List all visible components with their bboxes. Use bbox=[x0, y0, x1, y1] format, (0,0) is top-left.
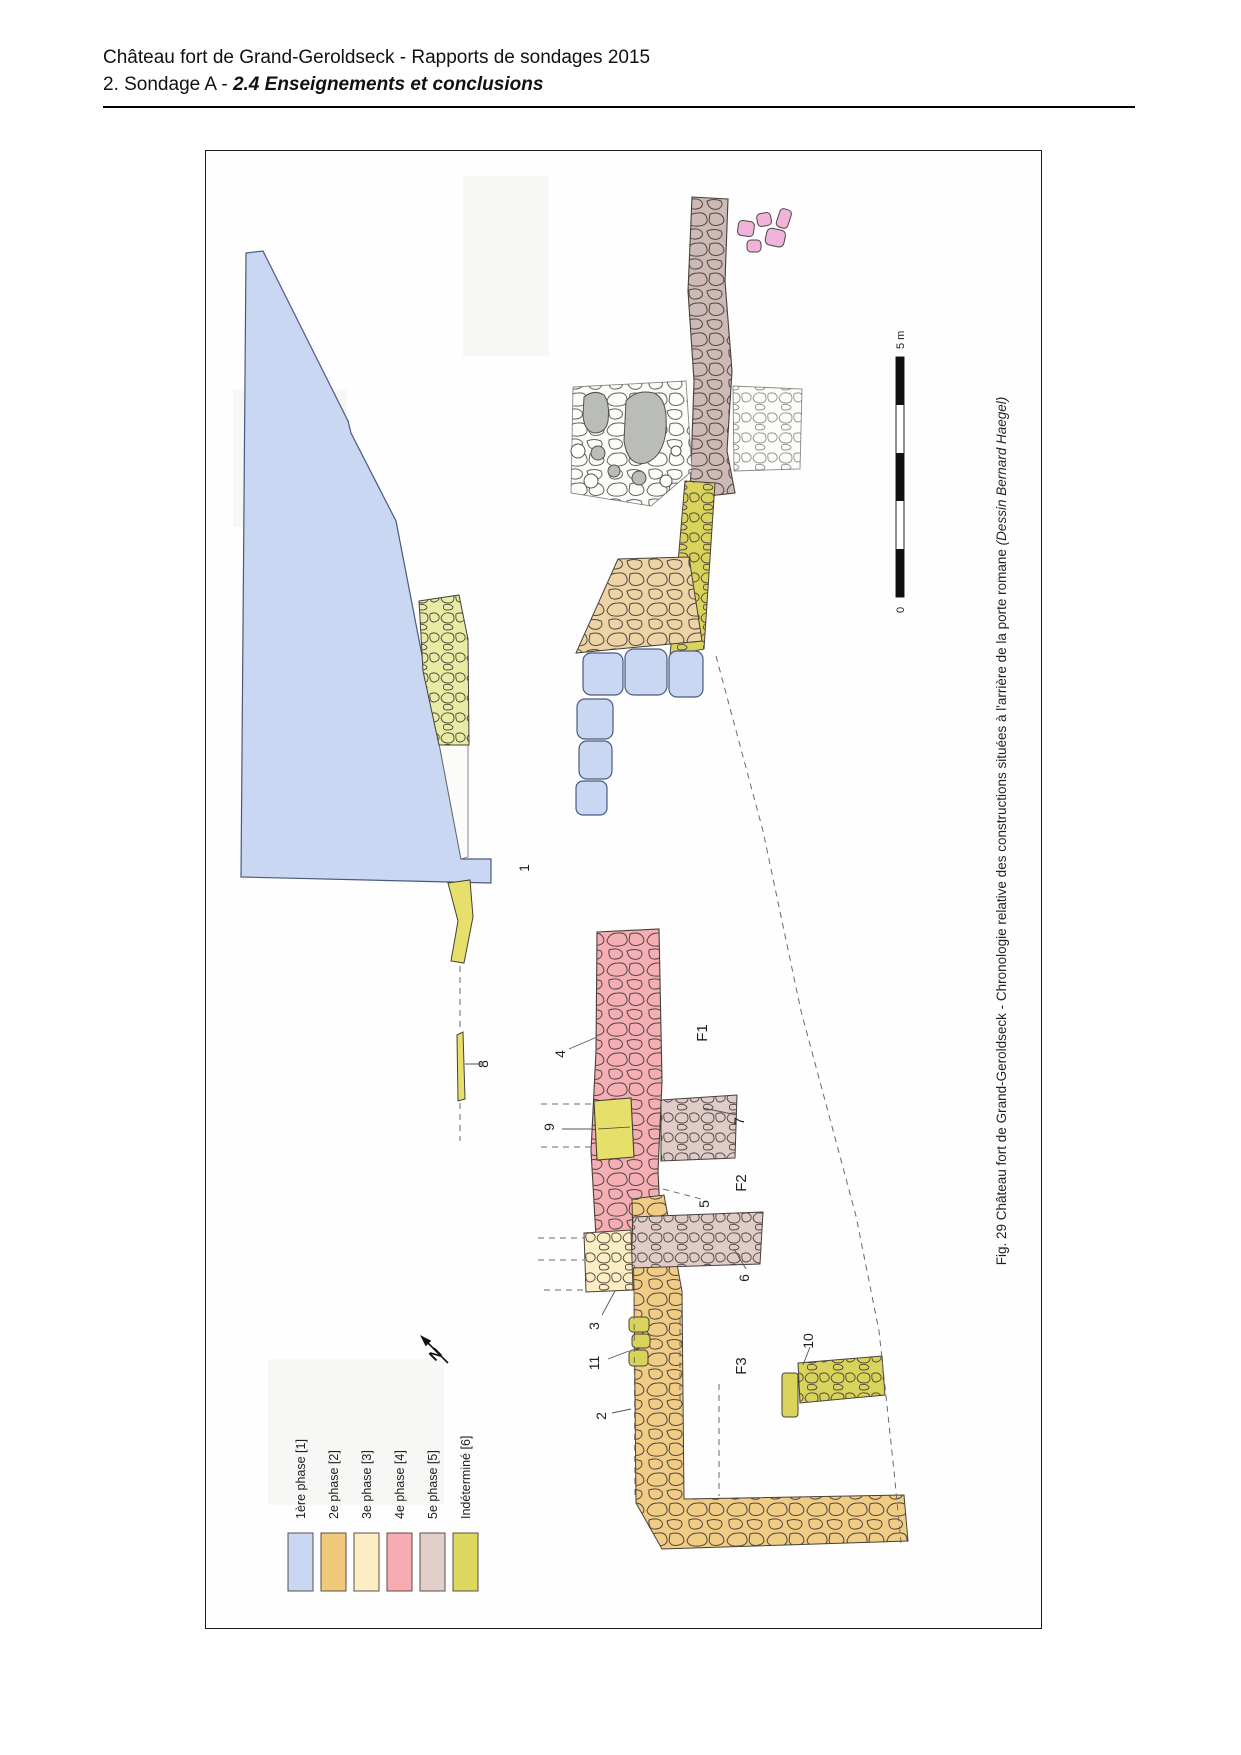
wall-phase5-main bbox=[688, 197, 735, 498]
indeterminate-column-11 bbox=[629, 1317, 650, 1366]
plan-label-3: 3 bbox=[586, 1322, 602, 1330]
indeterminate-wall-10 bbox=[782, 1356, 885, 1417]
plan-label-10: 10 bbox=[800, 1333, 816, 1349]
plan-label-F1: F1 bbox=[694, 1024, 711, 1042]
plan-label-9: 9 bbox=[541, 1123, 557, 1131]
scale-min-label: 0 bbox=[895, 607, 907, 613]
plan-label-F2: F2 bbox=[733, 1174, 750, 1192]
plan-figure: 1 2 3 4 5 6 7 8 9 10 11 F1 F2 F3 N 5 m 0 bbox=[206, 151, 1041, 1628]
plan-label-7: 7 bbox=[731, 1117, 747, 1125]
wall-phase5-stub-7 bbox=[661, 1095, 737, 1161]
plan-label-2: 2 bbox=[593, 1412, 609, 1420]
section-emphasis: 2.4 Enseignements et conclusions bbox=[233, 74, 543, 95]
plan-label-5: 5 bbox=[696, 1200, 712, 1208]
scattered-stones-pink bbox=[737, 208, 793, 252]
plan-label-11: 11 bbox=[586, 1356, 602, 1371]
caption-text: Fig. 29 Château fort de Grand-Geroldseck… bbox=[994, 545, 1009, 1265]
legend-label-phase5: 5e phase [5] bbox=[426, 1450, 440, 1519]
plan-label-1: 1 bbox=[516, 864, 532, 872]
legend-label-phase1: 1ère phase [1] bbox=[294, 1439, 308, 1519]
plan-label-6: 6 bbox=[736, 1274, 752, 1282]
wall-phase4 bbox=[591, 929, 662, 1237]
block-phase3 bbox=[584, 1230, 633, 1292]
page-header: Château fort de Grand-Geroldseck - Rappo… bbox=[103, 44, 1135, 98]
legend-swatch-phase1 bbox=[288, 1533, 313, 1591]
figure-caption: Fig. 29 Château fort de Grand-Geroldseck… bbox=[994, 397, 1009, 1266]
block-9-indeterminate bbox=[594, 1098, 634, 1160]
wall-phase5-stub-6 bbox=[631, 1212, 763, 1268]
figure-frame: 1 2 3 4 5 6 7 8 9 10 11 F1 F2 F3 N 5 m 0 bbox=[205, 150, 1042, 1629]
legend-swatch-phase4 bbox=[387, 1533, 412, 1591]
scale-max-label: 5 m bbox=[895, 331, 907, 349]
caption-credit: (Dessin Bernard Haegel) bbox=[994, 397, 1009, 546]
phase1-block-row bbox=[576, 649, 703, 815]
plan-bedrock-phase1 bbox=[241, 251, 491, 883]
scale-bar: 5 m 0 bbox=[895, 331, 907, 613]
report-title: Château fort de Grand-Geroldseck - Rappo… bbox=[103, 44, 1135, 71]
legend-swatch-phase5 bbox=[420, 1533, 445, 1591]
plan-label-8: 8 bbox=[475, 1060, 491, 1068]
legend-label-phase4: 4e phase [4] bbox=[393, 1450, 407, 1519]
header-rule bbox=[103, 106, 1135, 108]
rubble-trapezoid-phase2 bbox=[576, 557, 702, 653]
legend-swatches bbox=[288, 1533, 478, 1591]
section-title: 2. Sondage A - 2.4 Enseignements et conc… bbox=[103, 71, 1135, 98]
section-prefix: 2. Sondage A - bbox=[103, 74, 233, 95]
document-page: { "header": { "title": "Château fort de … bbox=[0, 0, 1241, 1755]
legend-label-phase3: 3e phase [3] bbox=[360, 1450, 374, 1519]
legend-swatch-phase2 bbox=[321, 1533, 346, 1591]
plan-label-F3: F3 bbox=[733, 1357, 750, 1375]
legend-swatch-indet bbox=[453, 1533, 478, 1591]
plan-label-4: 4 bbox=[552, 1050, 568, 1058]
legend-label-indet: Indéterminé [6] bbox=[459, 1436, 473, 1519]
legend-swatch-phase3 bbox=[354, 1533, 379, 1591]
legend-label-phase2: 2e phase [2] bbox=[327, 1450, 341, 1519]
